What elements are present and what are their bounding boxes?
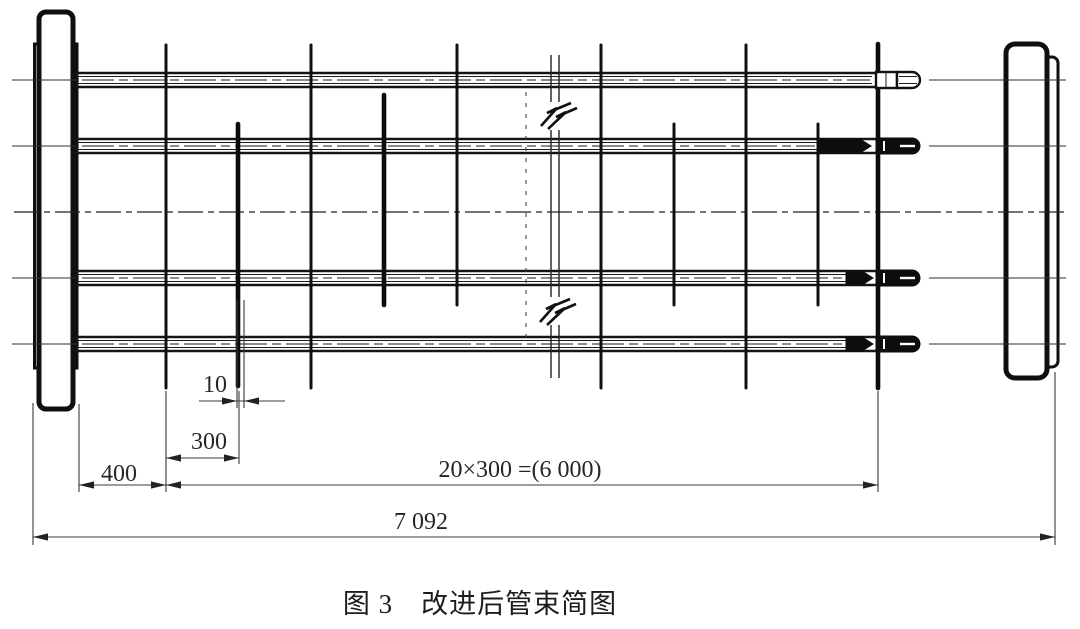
- dim-label-10: 10: [203, 372, 227, 398]
- dimension-baffle-spacing: 300: [166, 391, 239, 492]
- tubesheet-body: [1006, 44, 1047, 378]
- tube-bundle-drawing: 10 300 400 20×300 =(6 000) 7 092 图 3 改进后…: [0, 0, 1080, 629]
- dim-label-400: 400: [101, 461, 137, 487]
- flange-body: [39, 12, 73, 409]
- plug-row-1: [876, 72, 920, 88]
- dimension-baffled-length: 20×300 =(6 000): [166, 391, 878, 492]
- figure-canvas: 10 300 400 20×300 =(6 000) 7 092 图 3 改进后…: [0, 0, 1080, 629]
- dim-label-300: 300: [191, 429, 227, 455]
- break-lines: [526, 55, 577, 378]
- break-symbol-top: [541, 103, 577, 129]
- plug-row-4: [846, 336, 920, 352]
- dim-label-6000: 20×300 =(6 000): [438, 457, 601, 483]
- right-tubesheet: [1006, 44, 1058, 378]
- dimension-baffle-thickness: 10: [199, 300, 285, 408]
- plug-row-3: [846, 270, 920, 286]
- plug-row-2: [817, 138, 920, 154]
- dim-label-7092: 7 092: [394, 509, 448, 535]
- figure-caption: 图 3 改进后管束简图: [343, 589, 617, 619]
- left-tubesheet-flange: [35, 12, 78, 409]
- break-symbol-bottom: [540, 299, 576, 325]
- dimension-first-span: 400: [79, 404, 166, 492]
